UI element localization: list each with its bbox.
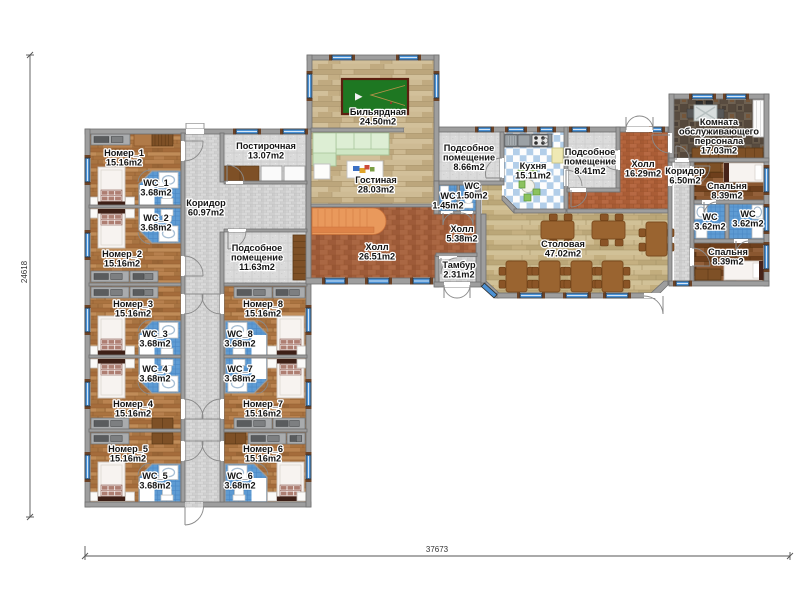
svg-text:WC_43.68m2: WC_43.68m2 bbox=[139, 364, 170, 384]
svg-text:WC_33.68m2: WC_33.68m2 bbox=[139, 329, 170, 349]
svg-text:Коридор6.50m2: Коридор6.50m2 bbox=[665, 166, 705, 186]
svg-text:Номер_315.16m2: Номер_315.16m2 bbox=[113, 299, 153, 319]
svg-text:Номер_715.16m2: Номер_715.16m2 bbox=[243, 399, 283, 419]
svg-text:Номер_415.16m2: Номер_415.16m2 bbox=[113, 399, 154, 419]
svg-text:Спальня8.39m2: Спальня8.39m2 bbox=[707, 181, 747, 201]
svg-text:Холл5.38m2: Холл5.38m2 bbox=[446, 224, 477, 244]
svg-text:Номер_815.16m2: Номер_815.16m2 bbox=[243, 299, 283, 319]
svg-text:37673: 37673 bbox=[426, 545, 449, 554]
svg-text:WC_63.68m2: WC_63.68m2 bbox=[224, 471, 255, 491]
svg-text:Номер_615.16m2: Номер_615.16m2 bbox=[243, 444, 283, 464]
svg-text:Тамбур2.31m2: Тамбур2.31m2 bbox=[442, 260, 476, 280]
svg-text:Гостиная28.03m2: Гостиная28.03m2 bbox=[355, 175, 397, 195]
svg-text:Коридор60.97m2: Коридор60.97m2 bbox=[186, 198, 226, 218]
svg-text:WC_73.68m2: WC_73.68m2 bbox=[224, 364, 255, 384]
svg-text:WC_13.68m2: WC_13.68m2 bbox=[140, 178, 171, 198]
svg-text:Номер_115.16m2: Номер_115.16m2 bbox=[104, 148, 144, 168]
svg-text:WC_23.68m2: WC_23.68m2 bbox=[140, 213, 171, 233]
svg-text:Номер_515.16m2: Номер_515.16m2 bbox=[108, 444, 148, 464]
svg-text:Столовая47.02m2: Столовая47.02m2 bbox=[541, 239, 585, 259]
svg-text:24618: 24618 bbox=[20, 260, 29, 283]
svg-text:Спальня8.39m2: Спальня8.39m2 bbox=[708, 247, 748, 267]
svg-text:Кухня15.11m2: Кухня15.11m2 bbox=[515, 161, 551, 181]
svg-text:WC_53.68m2: WC_53.68m2 bbox=[139, 471, 170, 491]
svg-text:Номер_215.16m2: Номер_215.16m2 bbox=[102, 249, 142, 269]
svg-text:WC_83.68m2: WC_83.68m2 bbox=[224, 329, 255, 349]
